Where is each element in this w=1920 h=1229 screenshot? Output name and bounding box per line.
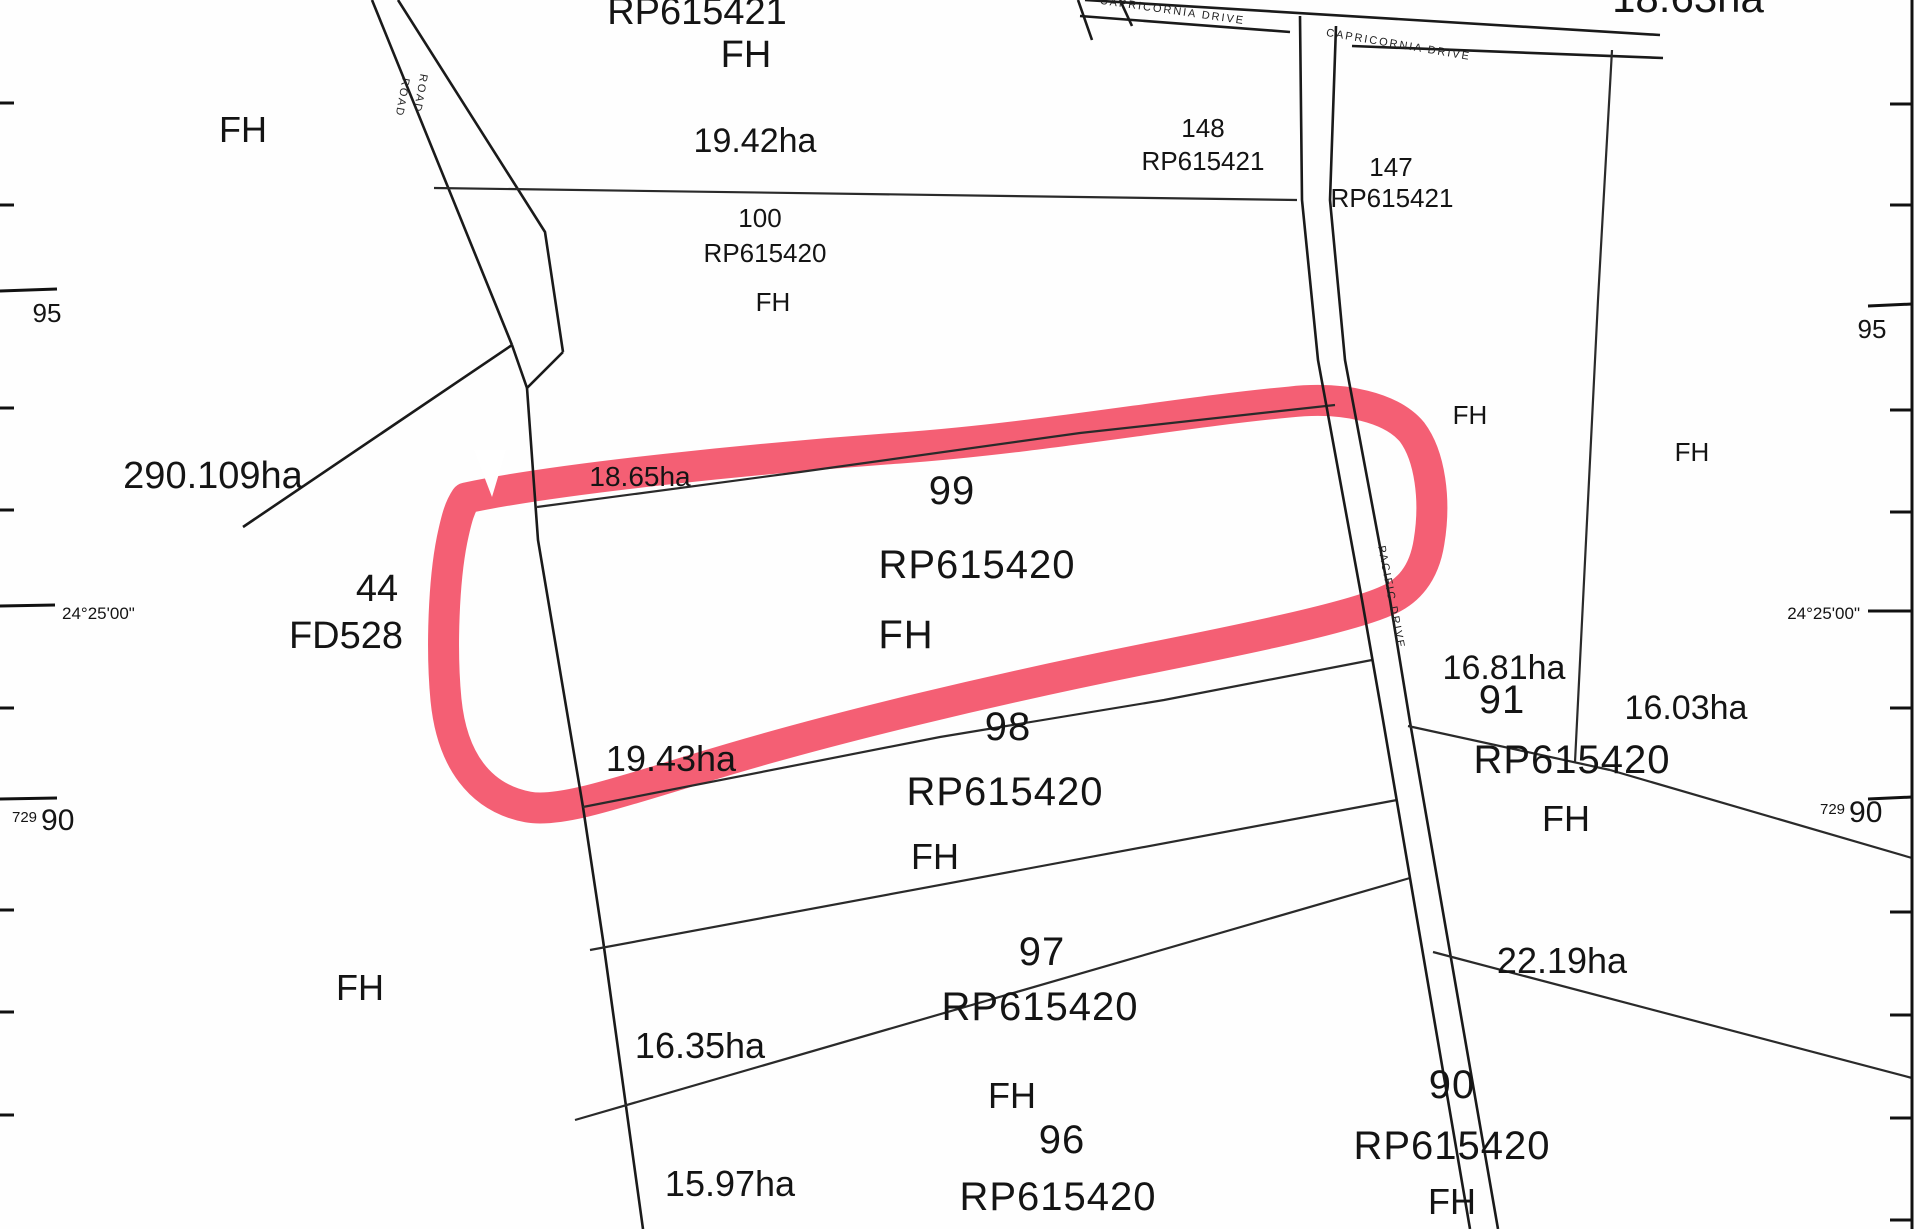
lot147-plan: RP615421 — [1331, 183, 1454, 213]
north-road-stub-left — [1078, 0, 1092, 40]
lot96-plan: RP615420 — [959, 1175, 1156, 1219]
lot91-number: 91 — [1479, 678, 1526, 722]
left-latitude-label: 24°25'00" — [62, 604, 135, 623]
lot44-area: 290.109ha — [123, 455, 303, 497]
north-strip-plan: RP615421 — [607, 0, 787, 33]
cadastral-map: RP615421 FH 19.42ha FH 18.63ha 100 RP615… — [0, 0, 1920, 1229]
lot100-north-boundary — [434, 188, 1297, 200]
lot44-tenure: FH — [336, 967, 384, 1008]
top-right-clipped-area: 18.63ha — [1612, 0, 1764, 21]
lot97-area: 16.35ha — [635, 1025, 766, 1066]
road1-end-cap — [512, 345, 563, 388]
left-northing-90: 72990 — [12, 804, 74, 837]
map-canvas: RP615421 FH 19.42ha FH 18.63ha 100 RP615… — [0, 0, 1920, 1229]
lot91-plan: RP615420 — [1473, 738, 1670, 782]
lot90-number: 90 — [1429, 1063, 1476, 1107]
north-strip-tenure: FH — [721, 34, 772, 76]
lot90-area: 22.19ha — [1497, 940, 1628, 981]
left-northing-95: 95 — [33, 298, 62, 328]
lot44-number: 44 — [356, 568, 398, 610]
lot147-tenure: FH — [1675, 437, 1710, 467]
lot99-number: 99 — [929, 469, 976, 513]
left-tick-95 — [0, 289, 57, 291]
lot147-number: 147 — [1369, 152, 1412, 182]
northwest-tenure: FH — [219, 109, 267, 150]
lot98-plan: RP615420 — [906, 770, 1103, 814]
road1-label-1: ROAD — [393, 77, 412, 118]
lot96-area: 15.97ha — [665, 1163, 796, 1204]
lot148-number: 148 — [1181, 113, 1224, 143]
right-northing-90: 72990 — [1820, 796, 1882, 829]
lot96-number: 96 — [1039, 1118, 1086, 1162]
right-tick-95 — [1868, 304, 1912, 306]
lot97-north-boundary — [590, 800, 1397, 950]
lot148-147-boundary — [1575, 50, 1612, 762]
right-northing-95: 95 — [1858, 314, 1887, 344]
lot91-tenure: FH — [1542, 798, 1590, 839]
lot100-tenure: FH — [756, 287, 791, 317]
lot44-plan: FD528 — [289, 615, 403, 657]
road1-right-line — [398, 0, 563, 352]
left-tick-90 — [0, 798, 57, 799]
lot97-tenure: FH — [988, 1075, 1036, 1116]
right-latitude-label: 24°25'00" — [1787, 604, 1860, 623]
lot100-plan: RP615420 — [704, 238, 827, 268]
left-tick-lat — [0, 605, 55, 606]
lot98-number: 98 — [985, 705, 1032, 749]
capricornia-drive-label-2: CAPRICORNIA DRIVE — [1325, 27, 1471, 63]
road1-label-2: ROAD — [411, 73, 430, 114]
lot90-plan: RP615420 — [1353, 1124, 1550, 1168]
lot97-plan: RP615420 — [941, 985, 1138, 1029]
road1-left-line — [372, 0, 512, 345]
lot148-plan: RP615421 — [1142, 146, 1265, 176]
lot99-plan: RP615420 — [878, 543, 1075, 587]
lot100-number: 100 — [738, 203, 781, 233]
north-strip-area: 19.42ha — [694, 122, 817, 160]
lot97-number: 97 — [1019, 930, 1066, 974]
lot99-tenure: FH — [878, 613, 933, 657]
lot98-area: 19.43ha — [606, 738, 737, 779]
lot99-area: 18.65ha — [589, 461, 691, 492]
lot147-area: 16.03ha — [1625, 689, 1748, 727]
lot90-tenure: FH — [1428, 1181, 1476, 1222]
lot98-tenure: FH — [911, 836, 959, 877]
lot148-tenure: FH — [1453, 400, 1488, 430]
